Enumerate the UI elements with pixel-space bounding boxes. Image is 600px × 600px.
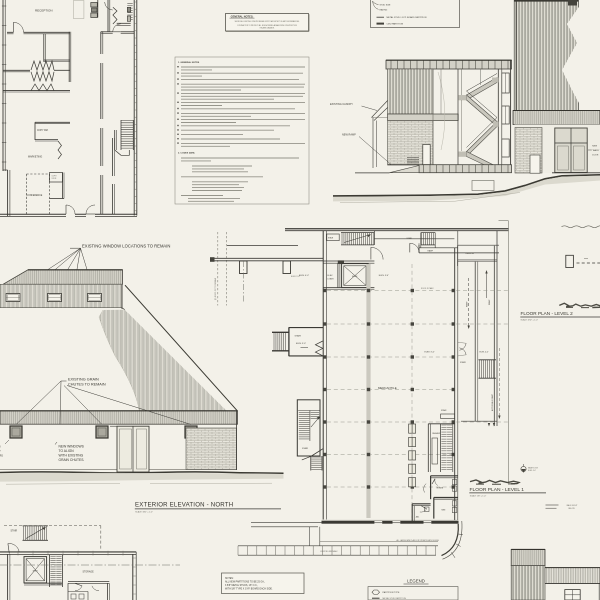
svg-text:WITH EXISTING: WITH EXISTING xyxy=(59,454,84,458)
svg-text:STAIR: STAIR xyxy=(407,237,413,240)
svg-text:ELEV.: ELEV. xyxy=(328,275,334,277)
svg-text:RATING: RATING xyxy=(380,8,388,11)
svg-text:NEW WINDOWS: NEW WINDOWS xyxy=(59,445,85,449)
svg-text:2. CODES DATA: 2. CODES DATA xyxy=(178,152,195,155)
svg-text:PARTITION TYPE: PARTITION TYPE xyxy=(383,591,400,594)
svg-text:RAMP: RAMP xyxy=(488,299,491,305)
svg-text:WITH 5/8" TYPE X GYP. BOARD EA: WITH 5/8" TYPE X GYP. BOARD EACH SIDE. xyxy=(225,588,273,591)
svg-text:NEW RAMP: NEW RAMP xyxy=(342,133,356,136)
svg-text:NEW: NEW xyxy=(592,146,597,148)
svg-text:LANDING: LANDING xyxy=(466,252,475,255)
svg-text:ELEV.: ELEV. xyxy=(352,276,358,278)
svg-text:TO ALIGN: TO ALIGN xyxy=(59,449,75,453)
svg-text:1. GENERAL NOTES: 1. GENERAL NOTES xyxy=(178,61,200,64)
svg-text:SCALE: 3/32" = 1'-0": SCALE: 3/32" = 1'-0" xyxy=(521,319,539,322)
svg-text:STAIR: STAIR xyxy=(328,237,334,240)
svg-text:MARKETING: MARKETING xyxy=(28,156,42,159)
svg-text:DOOR: DOOR xyxy=(592,154,599,156)
svg-text:WALK IN/OUT: WALK IN/OUT xyxy=(567,504,578,507)
svg-text:STAIR: STAIR xyxy=(295,335,302,338)
svg-text:METAL STUD / GYP. BOARD PARTIT: METAL STUD / GYP. BOARD PARTITION xyxy=(387,16,427,19)
svg-text:ACCESSIBLE RAMP: ACCESSIBLE RAMP xyxy=(491,393,494,411)
svg-text:GENERAL NOTES:: GENERAL NOTES: xyxy=(231,14,254,18)
svg-text:(E) ROOF JST TO REMAIN: (E) ROOF JST TO REMAIN xyxy=(214,277,217,300)
svg-text:FLOOR PLAN - LEVEL 2: FLOOR PLAN - LEVEL 2 xyxy=(521,311,574,316)
svg-text:ELEV. 4'-4": ELEV. 4'-4" xyxy=(299,275,309,277)
svg-text:RECEPTION: RECEPTION xyxy=(35,9,53,13)
svg-text:STOR.: STOR. xyxy=(52,178,58,180)
svg-text:COPY RM.: COPY RM. xyxy=(37,130,49,132)
svg-text:STAIR: STAIR xyxy=(302,447,308,450)
svg-text:GRAIN CHUTES.: GRAIN CHUTES. xyxy=(59,458,85,462)
svg-text:EXISTING CANOPY: EXISTING CANOPY xyxy=(330,103,353,106)
svg-text:DOORS: DOORS xyxy=(0,456,3,458)
svg-text:MERCANTILE: MERCANTILE xyxy=(378,386,397,390)
svg-text:EXISTING SIDEWALK: EXISTING SIDEWALK xyxy=(321,550,339,553)
svg-text:EXISTING WINDOW LOCATIONS TO R: EXISTING WINDOW LOCATIONS TO REMAIN xyxy=(82,244,170,249)
svg-text:SCALE: 3/32" = 1'-0": SCALE: 3/32" = 1'-0" xyxy=(135,511,153,514)
svg-text:CHUTES TO REMAIN: CHUTES TO REMAIN xyxy=(68,383,106,387)
svg-text:CMU PARTITION: CMU PARTITION xyxy=(387,23,404,26)
svg-text:ALL LANDSCAPE PLAN FOR STREETS: ALL LANDSCAPE PLAN FOR STREETSCAPE DESIG… xyxy=(397,539,440,542)
svg-text:RAMP: RAMP xyxy=(428,250,434,253)
svg-text:ROOF JST ABV: ROOF JST ABV xyxy=(421,287,434,290)
svg-text:FLOOR PLAN - LEVEL 1: FLOOR PLAN - LEVEL 1 xyxy=(470,487,525,493)
svg-text:CASHIER: CASHIER xyxy=(432,432,441,435)
svg-text:SCALE: 1/8" = 1'-0": SCALE: 1/8" = 1'-0" xyxy=(470,495,487,498)
svg-text:3 5/8" METAL STUDS, 16" O.C.,: 3 5/8" METAL STUDS, 16" O.C., xyxy=(225,584,258,587)
svg-text:ELEV. 3'-6": ELEV. 3'-6" xyxy=(296,343,306,345)
svg-text:ALL NEW PARTITIONS TO BE 25 GA: ALL NEW PARTITIONS TO BE 25 GA., xyxy=(225,580,265,583)
svg-text:BELOW: BELOW xyxy=(569,508,576,510)
svg-text:STUD SIZE: STUD SIZE xyxy=(380,5,391,7)
svg-text:EXTERIOR ELEVATION - NORTH: EXTERIOR ELEVATION - NORTH xyxy=(135,502,233,509)
svg-text:EXISTING GRAIN: EXISTING GRAIN xyxy=(68,378,99,382)
svg-text:"BARN": "BARN" xyxy=(592,149,599,152)
svg-text:ELEV. 3'-6": ELEV. 3'-6" xyxy=(425,352,435,354)
svg-text:LOBBY: LOBBY xyxy=(328,279,335,281)
svg-text:ELEV. 0'-0": ELEV. 0'-0" xyxy=(528,470,536,472)
svg-text:ELEV.: ELEV. xyxy=(33,570,39,572)
svg-text:STAIR: STAIR xyxy=(441,409,447,412)
svg-text:"BARN-STYLE": "BARN-STYLE" xyxy=(0,450,1,453)
svg-text:ELEV. 4'-0": ELEV. 4'-0" xyxy=(480,351,489,353)
svg-text:ELEV. 3'-6": ELEV. 3'-6" xyxy=(379,275,389,277)
svg-text:CONFERENCE: CONFERENCE xyxy=(27,195,43,197)
svg-text:STORAGE: STORAGE xyxy=(83,571,95,574)
svg-text:RAMP: RAMP xyxy=(466,301,469,307)
svg-text:WOMEN: WOMEN xyxy=(437,487,444,489)
svg-text:NOTES:: NOTES: xyxy=(225,578,234,580)
svg-text:STAIR: STAIR xyxy=(460,361,466,364)
svg-text:JAN.: JAN. xyxy=(416,515,420,518)
svg-text:LEGEND: LEGEND xyxy=(407,578,425,583)
svg-text:STAIR: STAIR xyxy=(11,530,18,533)
